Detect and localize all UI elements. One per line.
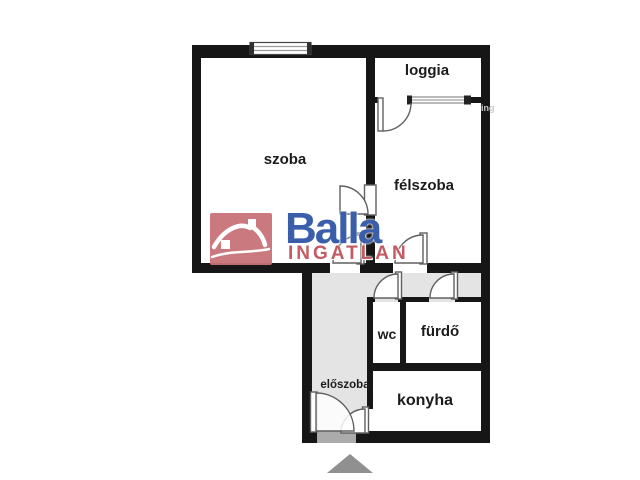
logo-subtitle-text: INGATLAN xyxy=(288,244,409,263)
label-loggia: loggia xyxy=(387,63,467,78)
door-loggia-felszoba xyxy=(378,98,411,131)
floor-plan-canvas: szoba loggia félszoba wc fürdő konyha el… xyxy=(0,0,640,480)
label-felszoba: félszoba xyxy=(384,178,464,193)
label-konyha: konyha xyxy=(385,393,465,409)
house-icon xyxy=(210,213,272,265)
door-entrance xyxy=(311,392,355,432)
label-wc: wc xyxy=(367,327,407,341)
label-eloszoba: előszoba xyxy=(314,380,376,392)
door-wc xyxy=(374,272,402,299)
label-furdo: fürdő xyxy=(405,324,475,339)
watermark-fragment: ing xyxy=(481,103,495,113)
window-loggia xyxy=(407,96,471,105)
window-szoba xyxy=(250,43,311,55)
door-furdo xyxy=(430,272,458,299)
triangle-marker xyxy=(327,454,373,473)
label-szoba: szoba xyxy=(245,152,325,167)
